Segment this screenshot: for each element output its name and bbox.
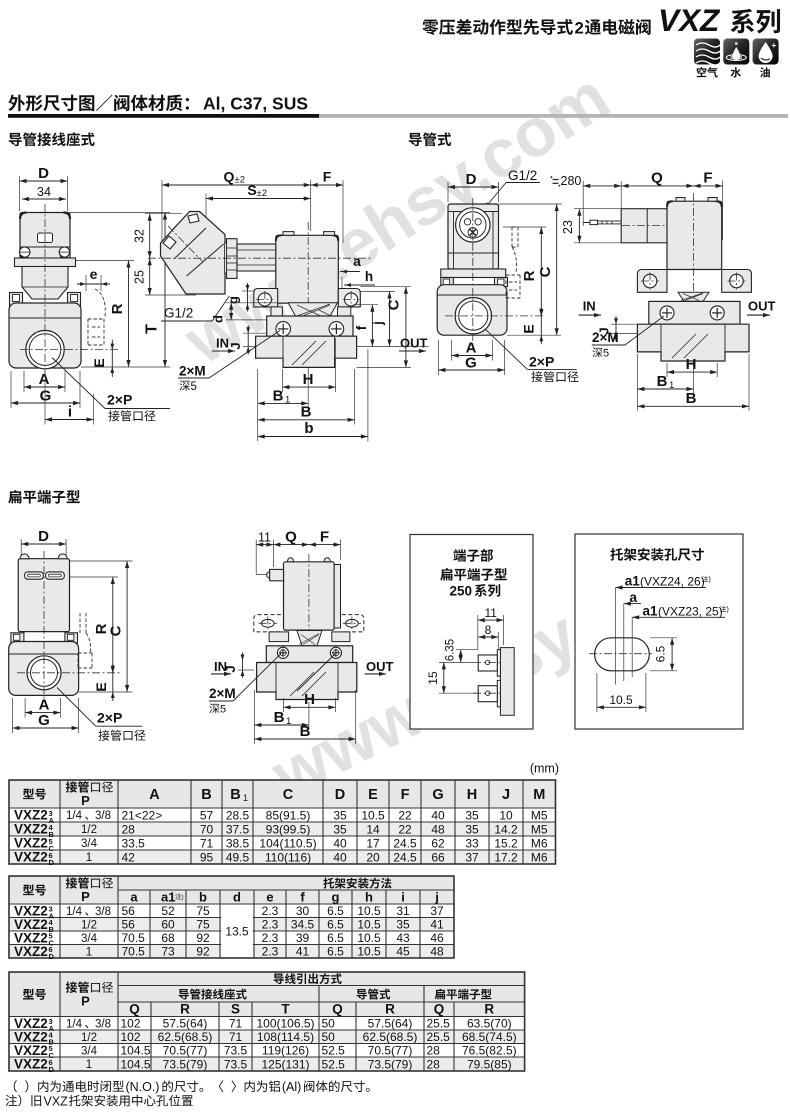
- svg-text:48: 48: [430, 945, 444, 959]
- svg-text:Q: Q: [332, 1002, 343, 1017]
- svg-text:52.5: 52.5: [322, 1044, 346, 1058]
- svg-text:OUT: OUT: [400, 336, 428, 351]
- svg-text:35: 35: [333, 808, 347, 822]
- svg-text:10.5: 10.5: [357, 904, 381, 918]
- svg-text:B: B: [274, 709, 285, 726]
- svg-text:B: B: [201, 787, 211, 803]
- svg-text:20: 20: [366, 850, 380, 864]
- svg-text:125(131): 125(131): [261, 1057, 309, 1071]
- svg-text:66: 66: [431, 850, 445, 864]
- svg-text:i: i: [401, 890, 405, 905]
- svg-text:73.5(79): 73.5(79): [163, 1057, 208, 1071]
- svg-text:OUT: OUT: [748, 299, 776, 314]
- svg-text:104.5: 104.5: [121, 1044, 151, 1058]
- svg-text:5: 5: [220, 704, 226, 716]
- svg-text:B: B: [686, 390, 697, 407]
- svg-text:73.5: 73.5: [224, 1057, 248, 1071]
- svg-text:6.5: 6.5: [327, 904, 344, 918]
- svg-text:3/8: 3/8: [95, 1018, 111, 1030]
- svg-text:28.5: 28.5: [226, 808, 250, 822]
- svg-text:10: 10: [499, 808, 513, 822]
- svg-text:60: 60: [161, 918, 175, 932]
- svg-text:2×M: 2×M: [179, 364, 206, 379]
- svg-text:±2: ±2: [257, 188, 268, 199]
- svg-text:1/4: 1/4: [66, 1018, 83, 1030]
- svg-text:28: 28: [427, 1044, 441, 1058]
- svg-text:G: G: [465, 355, 477, 372]
- svg-text:Q: Q: [285, 529, 297, 546]
- svg-text:M6: M6: [531, 836, 548, 850]
- svg-text:D: D: [38, 528, 49, 545]
- svg-text:1: 1: [285, 395, 290, 406]
- svg-text:1: 1: [86, 1059, 92, 1071]
- svg-text:1/2: 1/2: [81, 1032, 97, 1044]
- svg-text:35: 35: [396, 918, 410, 932]
- svg-text:h: h: [365, 269, 373, 284]
- svg-text:6.5: 6.5: [327, 945, 344, 959]
- svg-text:A: A: [39, 371, 50, 388]
- svg-text:D: D: [49, 1065, 55, 1074]
- svg-text:b: b: [304, 420, 313, 437]
- svg-text:J: J: [223, 665, 238, 672]
- svg-text:D: D: [38, 165, 49, 182]
- svg-text:56: 56: [122, 904, 136, 918]
- svg-text:e: e: [90, 266, 98, 282]
- svg-text:38.5: 38.5: [226, 836, 250, 850]
- svg-text:57.5(64): 57.5(64): [368, 1017, 413, 1031]
- svg-text:a1: a1: [161, 890, 175, 905]
- svg-text:6.5: 6.5: [327, 918, 344, 932]
- svg-text:52.5: 52.5: [322, 1057, 346, 1071]
- svg-text:B: B: [273, 388, 284, 405]
- svg-text:(mm): (mm): [530, 762, 559, 776]
- svg-text:R: R: [484, 1002, 494, 1017]
- svg-text:): ): [709, 577, 711, 584]
- svg-text:15: 15: [426, 671, 440, 685]
- svg-text:56: 56: [122, 918, 136, 932]
- svg-text:j: j: [434, 890, 439, 905]
- svg-text:f: f: [300, 890, 305, 905]
- svg-text:104.5: 104.5: [121, 1057, 151, 1071]
- svg-text:119(126): 119(126): [262, 1044, 309, 1058]
- svg-text:1/4: 1/4: [66, 906, 83, 918]
- svg-text:24.5: 24.5: [393, 850, 417, 864]
- svg-text:42: 42: [122, 850, 136, 864]
- svg-text:h: h: [365, 890, 373, 905]
- svg-text:P: P: [81, 889, 90, 904]
- svg-text:40: 40: [431, 808, 445, 822]
- svg-text:S: S: [231, 1002, 240, 1017]
- svg-text:70.5: 70.5: [122, 931, 146, 945]
- svg-text:75: 75: [196, 918, 210, 932]
- svg-text:1: 1: [669, 380, 674, 391]
- svg-text:D: D: [49, 858, 55, 867]
- svg-text:250: 250: [450, 584, 473, 599]
- svg-text:3/4: 3/4: [81, 1045, 98, 1057]
- svg-text:45: 45: [396, 945, 410, 959]
- svg-text:14.2: 14.2: [494, 822, 518, 836]
- svg-text:Q: Q: [224, 169, 235, 185]
- svg-text:VXZ2: VXZ2: [14, 944, 48, 959]
- svg-text:40: 40: [333, 850, 347, 864]
- svg-text:70.5: 70.5: [122, 945, 146, 959]
- svg-text:3/8: 3/8: [95, 906, 111, 918]
- svg-text:C: C: [108, 625, 125, 636]
- svg-text:G1/2: G1/2: [164, 306, 193, 321]
- svg-text:D: D: [466, 171, 477, 188]
- svg-text:d: d: [233, 890, 241, 905]
- svg-text:): ): [727, 607, 729, 614]
- svg-text:Q: Q: [434, 1002, 445, 1017]
- svg-text:±2: ±2: [235, 175, 246, 186]
- svg-text:f: f: [354, 325, 369, 330]
- svg-text:68.5(74.5): 68.5(74.5): [462, 1030, 517, 1044]
- svg-text:68: 68: [161, 931, 175, 945]
- svg-text:E: E: [93, 682, 109, 691]
- svg-text:70.5(77): 70.5(77): [368, 1044, 413, 1058]
- svg-text:8: 8: [485, 623, 492, 637]
- svg-text:VXZ2: VXZ2: [14, 822, 48, 837]
- svg-text:41: 41: [296, 945, 310, 959]
- svg-text:T: T: [281, 1002, 290, 1017]
- svg-text:75: 75: [196, 904, 210, 918]
- svg-text:62.5(68.5): 62.5(68.5): [158, 1030, 213, 1044]
- svg-text:1/4: 1/4: [66, 810, 83, 822]
- svg-text:6.35: 6.35: [445, 639, 457, 661]
- svg-text:24.5: 24.5: [393, 836, 417, 850]
- svg-text:71: 71: [229, 1017, 243, 1031]
- svg-text:31: 31: [396, 904, 410, 918]
- svg-text:B: B: [301, 404, 312, 421]
- svg-text:17.2: 17.2: [494, 850, 518, 864]
- svg-text:Al, C37, SUS: Al, C37, SUS: [203, 94, 308, 114]
- svg-text:57: 57: [200, 808, 214, 822]
- svg-text:25: 25: [133, 270, 147, 284]
- svg-text:33: 33: [465, 836, 479, 850]
- svg-text:50: 50: [322, 1017, 336, 1031]
- svg-text:11: 11: [484, 606, 497, 620]
- svg-text:73.5: 73.5: [224, 1044, 248, 1058]
- svg-text:70.5(77): 70.5(77): [163, 1044, 208, 1058]
- svg-text:2.3: 2.3: [262, 945, 279, 959]
- svg-text:10.5: 10.5: [357, 945, 381, 959]
- svg-text:P: P: [81, 793, 90, 808]
- svg-text:37: 37: [465, 850, 479, 864]
- svg-text:48: 48: [431, 822, 445, 836]
- svg-text:70: 70: [200, 822, 214, 836]
- svg-text:M: M: [533, 787, 545, 803]
- svg-text:F: F: [703, 170, 712, 187]
- svg-text:73: 73: [161, 945, 175, 959]
- svg-text:R: R: [180, 1002, 190, 1017]
- svg-text:37: 37: [430, 904, 444, 918]
- svg-text:35: 35: [333, 822, 347, 836]
- svg-text:14: 14: [366, 822, 380, 836]
- svg-text:32: 32: [133, 229, 147, 243]
- svg-text:10.5: 10.5: [357, 918, 381, 932]
- svg-text:35: 35: [465, 808, 479, 822]
- svg-text:10.5: 10.5: [361, 808, 385, 822]
- svg-text:34.5: 34.5: [291, 918, 315, 932]
- svg-text:F: F: [323, 169, 332, 185]
- svg-text:G: G: [38, 712, 50, 729]
- svg-text:C: C: [537, 266, 554, 277]
- svg-text:2×P: 2×P: [107, 392, 132, 408]
- svg-text:C: C: [386, 299, 403, 310]
- svg-text:15.2: 15.2: [494, 836, 518, 850]
- svg-text:b: b: [199, 890, 207, 905]
- svg-text:J: J: [502, 787, 510, 803]
- svg-text:Q: Q: [129, 1002, 140, 1017]
- svg-text:E: E: [91, 358, 107, 367]
- svg-text:22: 22: [398, 808, 412, 822]
- svg-text:108(114.5): 108(114.5): [257, 1030, 314, 1044]
- svg-text:13.5: 13.5: [225, 924, 249, 938]
- svg-text:M5: M5: [531, 822, 548, 836]
- svg-text:30: 30: [296, 904, 310, 918]
- svg-text:41: 41: [430, 918, 444, 932]
- svg-text:95: 95: [200, 850, 214, 864]
- svg-text:T: T: [144, 324, 161, 334]
- svg-text:3/4: 3/4: [81, 838, 98, 850]
- svg-text:110(116): 110(116): [265, 850, 311, 864]
- svg-text:OUT: OUT: [366, 659, 394, 674]
- svg-text:1/2: 1/2: [81, 919, 97, 931]
- svg-text:a: a: [130, 890, 138, 905]
- svg-text:5: 5: [191, 381, 197, 393]
- svg-text:6.5: 6.5: [327, 931, 344, 945]
- svg-text:g: g: [332, 890, 340, 905]
- svg-text:11: 11: [258, 531, 271, 545]
- svg-text:76.5(82.5): 76.5(82.5): [462, 1044, 517, 1058]
- svg-text:2.3: 2.3: [262, 904, 279, 918]
- svg-text:A: A: [149, 787, 160, 803]
- svg-text:(VXZ23, 25): (VXZ23, 25): [658, 605, 723, 619]
- svg-text:104(110.5): 104(110.5): [259, 836, 316, 850]
- svg-text:1: 1: [86, 852, 92, 864]
- svg-text:1: 1: [286, 716, 291, 727]
- svg-text:62: 62: [431, 836, 445, 850]
- svg-text:IN: IN: [583, 299, 596, 314]
- svg-text:2.3: 2.3: [262, 918, 279, 932]
- svg-text:6.5: 6.5: [654, 645, 668, 662]
- svg-text:a1: a1: [625, 574, 641, 589]
- svg-text:R: R: [385, 1002, 395, 1017]
- svg-text:43: 43: [396, 931, 410, 945]
- svg-text:H: H: [686, 356, 697, 373]
- svg-text:17: 17: [366, 836, 380, 850]
- svg-text:40: 40: [333, 836, 347, 850]
- svg-text:52: 52: [161, 904, 175, 918]
- svg-text:37.5: 37.5: [226, 822, 250, 836]
- svg-text:102: 102: [121, 1017, 141, 1031]
- svg-text:3/8: 3/8: [95, 810, 111, 822]
- svg-text:B: B: [657, 373, 668, 390]
- svg-text:71: 71: [229, 1030, 243, 1044]
- svg-text:85(91.5): 85(91.5): [266, 808, 311, 822]
- svg-text:92: 92: [196, 945, 210, 959]
- svg-text:VXZ2: VXZ2: [14, 808, 48, 823]
- svg-text:F: F: [401, 787, 410, 803]
- svg-text:E: E: [521, 324, 537, 333]
- svg-text:G: G: [432, 787, 443, 803]
- svg-text:VXZ2: VXZ2: [14, 850, 48, 865]
- svg-text:100(106.5): 100(106.5): [256, 1017, 314, 1031]
- svg-text:280: 280: [561, 174, 582, 188]
- svg-text:5: 5: [603, 348, 609, 360]
- svg-text:+: +: [772, 41, 777, 50]
- svg-text:VXZ2: VXZ2: [14, 1057, 48, 1072]
- svg-text:B: B: [230, 787, 240, 803]
- svg-text:63.5(70): 63.5(70): [467, 1017, 512, 1031]
- svg-text:S: S: [247, 182, 256, 198]
- svg-text:2×M: 2×M: [592, 330, 619, 345]
- svg-text:10.5: 10.5: [609, 693, 633, 707]
- svg-text:22: 22: [398, 822, 412, 836]
- svg-text:2×M: 2×M: [209, 686, 236, 701]
- svg-text:(Al): (Al): [282, 1080, 301, 1094]
- svg-text:46: 46: [430, 931, 444, 945]
- svg-text:25.5: 25.5: [427, 1017, 451, 1031]
- svg-text:D: D: [49, 952, 55, 961]
- svg-text:2.3: 2.3: [262, 931, 279, 945]
- svg-text:a: a: [353, 254, 361, 269]
- svg-text:M5: M5: [531, 808, 548, 822]
- svg-text:79.5(85): 79.5(85): [467, 1057, 512, 1071]
- svg-text:28: 28: [122, 822, 136, 836]
- svg-text:): ): [182, 894, 184, 901]
- svg-text:33.5: 33.5: [122, 836, 146, 850]
- svg-text:M6: M6: [531, 850, 548, 864]
- svg-text:57.5(64): 57.5(64): [163, 1017, 208, 1031]
- svg-text:1: 1: [243, 793, 248, 803]
- svg-text:49.5: 49.5: [226, 850, 250, 864]
- svg-text:H: H: [467, 787, 477, 803]
- svg-text:i: i: [68, 404, 72, 421]
- svg-text:j: j: [370, 321, 385, 326]
- svg-text:C: C: [283, 787, 294, 803]
- svg-text:62.5(68.5): 62.5(68.5): [363, 1030, 418, 1044]
- svg-text:2: 2: [575, 18, 584, 37]
- svg-text:39: 39: [296, 931, 310, 945]
- svg-text:P: P: [81, 993, 90, 1008]
- svg-text:A: A: [39, 697, 50, 714]
- svg-text:21<22>: 21<22>: [122, 808, 163, 822]
- svg-text:28: 28: [427, 1057, 441, 1071]
- svg-text:71: 71: [200, 836, 214, 850]
- svg-text:G: G: [40, 388, 52, 405]
- svg-text:2×P: 2×P: [97, 710, 122, 726]
- svg-text:1/2: 1/2: [81, 824, 97, 836]
- svg-text:3/4: 3/4: [81, 933, 98, 945]
- svg-text:23: 23: [561, 220, 575, 234]
- svg-text:VXZ: VXZ: [658, 2, 721, 38]
- svg-text:VXZ: VXZ: [44, 1094, 69, 1108]
- svg-text:H: H: [304, 691, 315, 708]
- svg-text:34: 34: [37, 185, 51, 199]
- svg-text:VXZ2: VXZ2: [14, 836, 48, 851]
- svg-text:B: B: [300, 723, 311, 740]
- svg-text:50: 50: [322, 1030, 336, 1044]
- svg-text:R: R: [109, 303, 126, 314]
- svg-text:a1: a1: [643, 604, 659, 619]
- svg-text:92: 92: [196, 931, 210, 945]
- svg-text:(N.O.): (N.O.): [125, 1080, 159, 1094]
- svg-text:d: d: [211, 315, 226, 323]
- svg-text:F: F: [320, 529, 329, 546]
- svg-text:J: J: [228, 342, 243, 349]
- svg-text:2×P: 2×P: [529, 353, 554, 369]
- svg-text:VXZ2: VXZ2: [14, 1043, 48, 1058]
- svg-text:e: e: [266, 890, 273, 905]
- svg-text:1: 1: [86, 946, 92, 958]
- svg-text:Q: Q: [651, 170, 663, 187]
- svg-text:D: D: [335, 787, 345, 803]
- svg-text:R: R: [521, 270, 538, 281]
- svg-text:73.5(79): 73.5(79): [368, 1057, 413, 1071]
- svg-text:25.5: 25.5: [427, 1030, 451, 1044]
- svg-text:10.5: 10.5: [357, 931, 381, 945]
- svg-text:102: 102: [121, 1030, 141, 1044]
- svg-text:93(99.5): 93(99.5): [266, 822, 311, 836]
- svg-text:E: E: [368, 787, 378, 803]
- svg-text:G1/2: G1/2: [508, 168, 537, 183]
- svg-text:35: 35: [465, 822, 479, 836]
- svg-text:(VXZ24, 26): (VXZ24, 26): [640, 575, 705, 589]
